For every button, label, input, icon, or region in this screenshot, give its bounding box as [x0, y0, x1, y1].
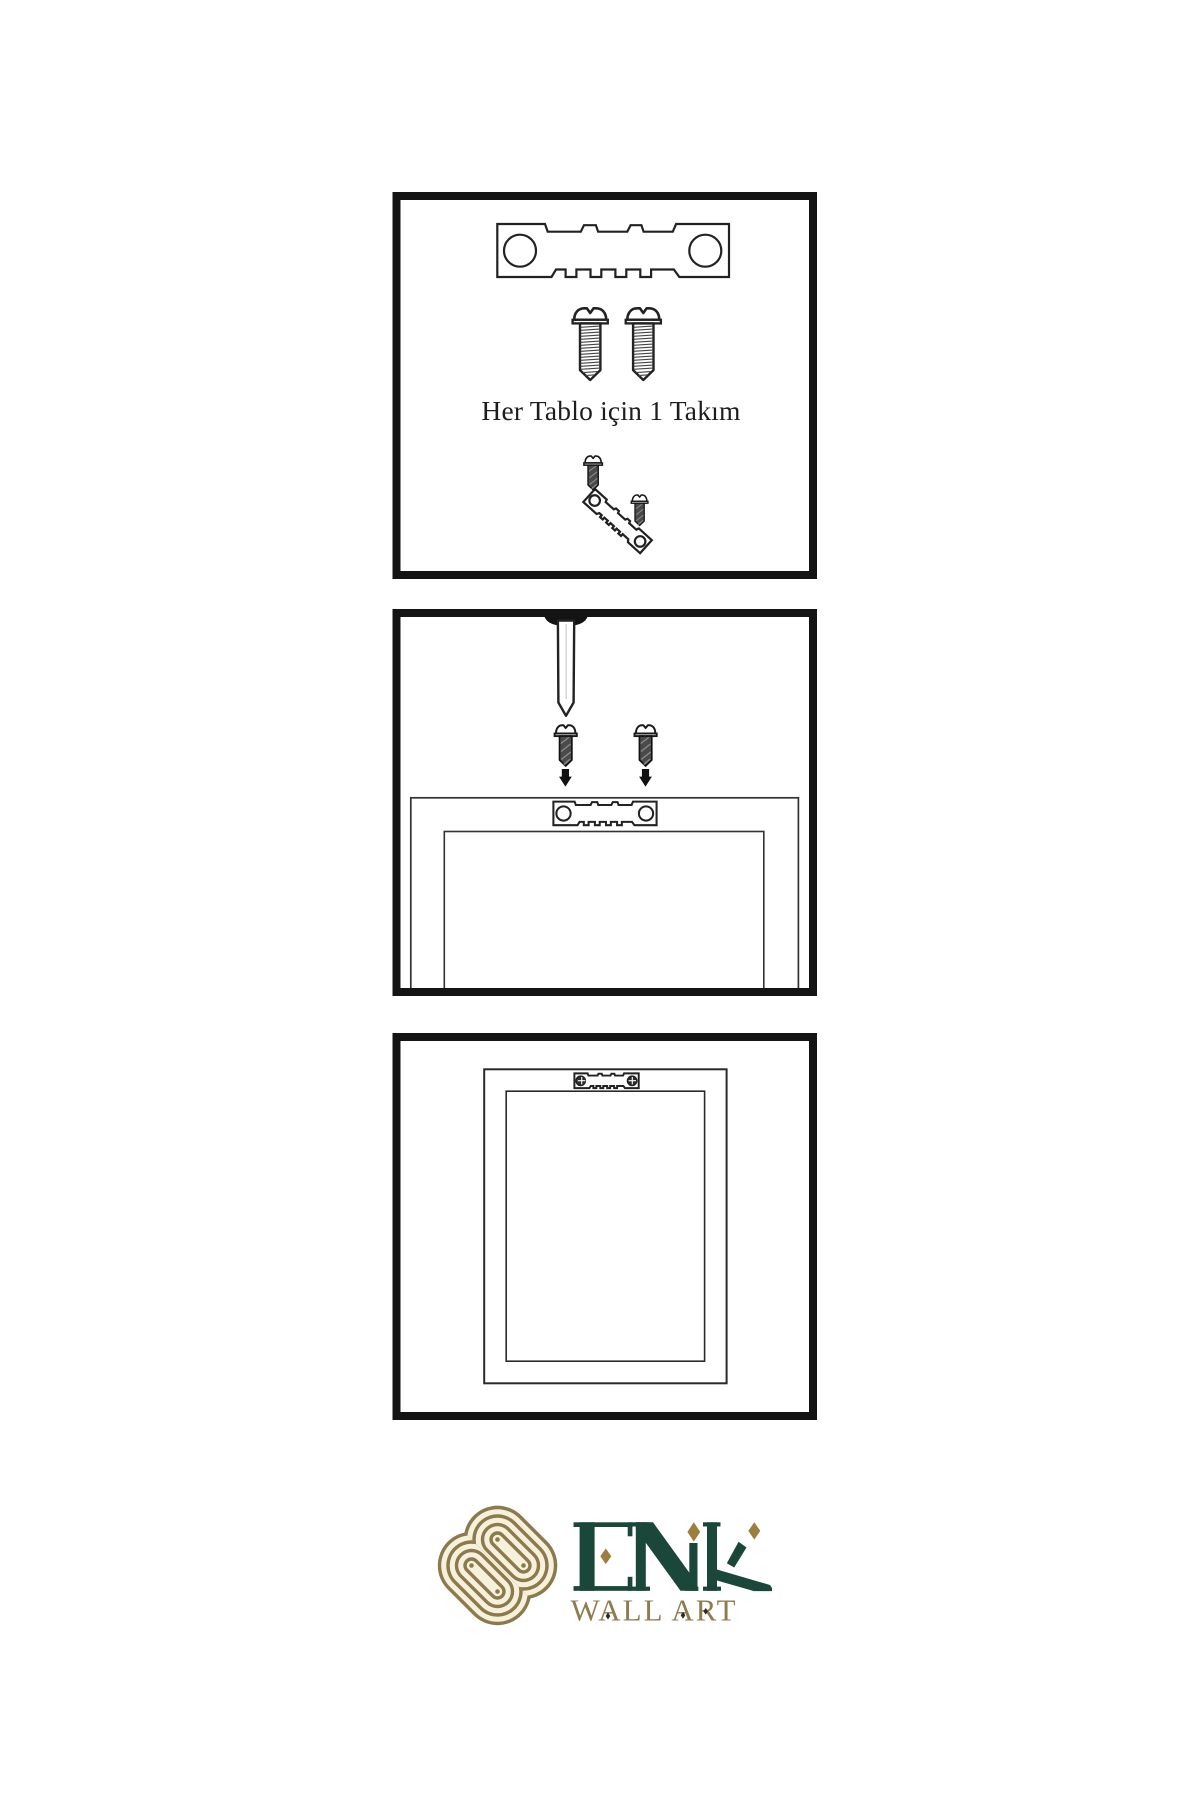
svg-text:Her Tablo için 1 Takım: Her Tablo için 1 Takım — [481, 395, 740, 426]
svg-text:WALL ART: WALL ART — [570, 1593, 737, 1628]
